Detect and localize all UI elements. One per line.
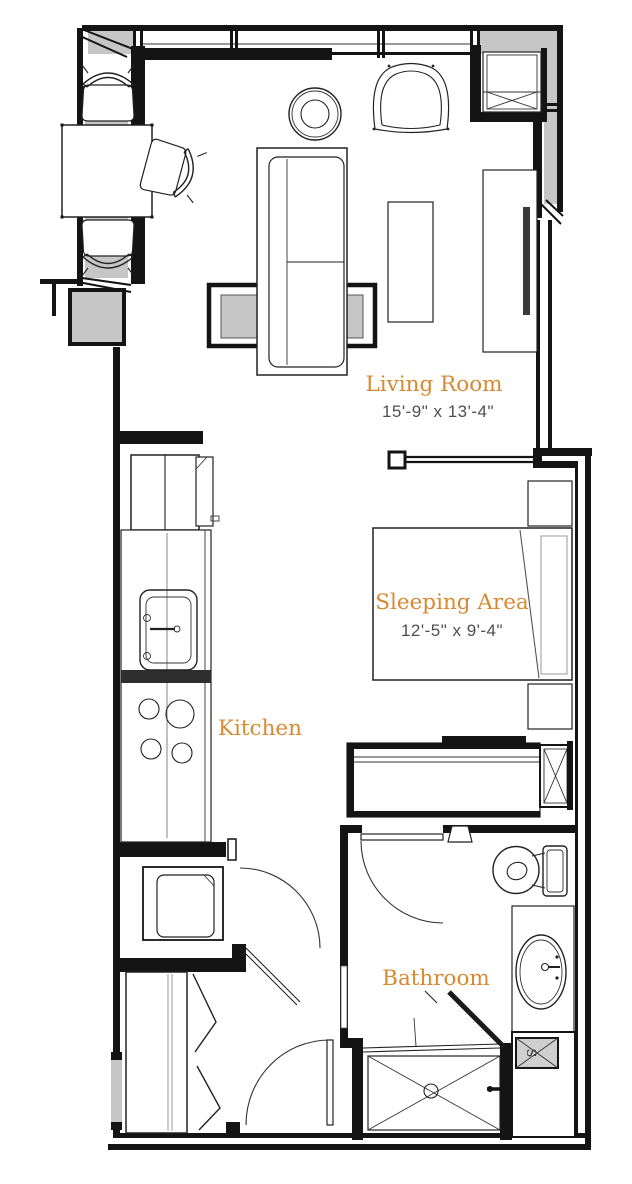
- nightstand: [528, 481, 572, 526]
- laundry-closet-area: [126, 867, 333, 1136]
- sleeping-area-label: Sleeping Area: [375, 590, 529, 615]
- floor-plan-drawing: S Living Room 15'-9" x 13'-4": [0, 0, 632, 1184]
- coffee-table: [388, 202, 433, 322]
- half-wall-post: [389, 452, 405, 468]
- vanity-sink: [512, 906, 574, 1034]
- sleeping-area-dimensions: 12'-5" x 9'-4": [401, 621, 503, 640]
- wall-tv: [523, 207, 530, 315]
- built-in-cabinet: [540, 741, 573, 810]
- bifold-closet-doors: [193, 974, 220, 1130]
- swing-door: [361, 826, 472, 923]
- nightstand: [528, 684, 572, 729]
- structural-column: [70, 290, 124, 344]
- stacked-washer-dryer: [143, 867, 223, 940]
- bathroom-label: Bathroom: [382, 966, 490, 991]
- shelf-cabinet: S: [512, 1032, 575, 1137]
- living-room-label: Living Room: [365, 372, 502, 397]
- kitchen-area: [121, 455, 219, 842]
- wardrobe: [126, 972, 187, 1133]
- dining-chair: [82, 65, 134, 121]
- refrigerator: [131, 455, 219, 530]
- dining-table: [62, 125, 152, 217]
- swing-door: [226, 1040, 333, 1136]
- room-labels: Living Room 15'-9" x 13'-4" Sleeping Are…: [218, 372, 529, 991]
- kitchen-label: Kitchen: [218, 716, 302, 741]
- walk-in-shower: [340, 991, 512, 1140]
- sliding-door-closet: [347, 736, 573, 817]
- half-wall-rail: [405, 457, 534, 462]
- living-room-dimensions: 15'-9" x 13'-4": [382, 402, 494, 421]
- shower-door: [425, 991, 504, 1047]
- lounge-chair: [373, 64, 450, 133]
- floor-plan: S Living Room 15'-9" x 13'-4": [0, 0, 632, 1184]
- shelf-marker: S: [523, 1049, 538, 1058]
- sofa: [257, 148, 347, 375]
- toilet: [493, 846, 567, 896]
- round-side-table: [289, 88, 341, 140]
- swing-door: [240, 868, 320, 1005]
- kitchen-counter: [121, 530, 211, 842]
